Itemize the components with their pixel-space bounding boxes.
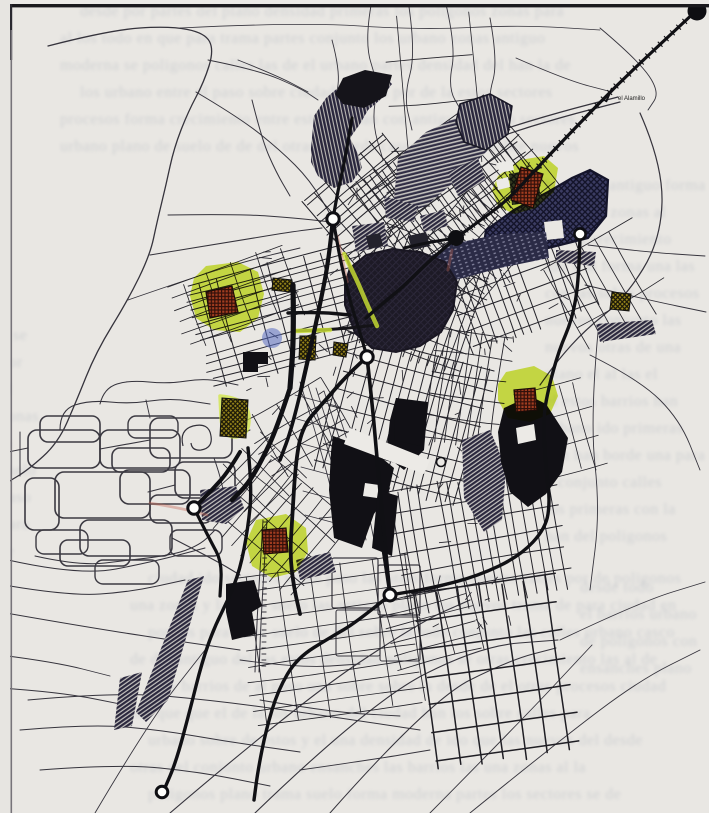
svg-text:poligonos plano trama suelo fo: poligonos plano trama suelo forma modern… (148, 786, 621, 803)
svg-text:urbano ido primeras: urbano ido primeras (545, 420, 683, 437)
svg-text:el Alamillo: el Alamillo (618, 96, 646, 102)
svg-text:de poligonos con: de poligonos con (580, 633, 697, 650)
svg-text:en y barrios de al paso una so: en y barrios de al paso una sobre sobre … (148, 678, 666, 695)
svg-text:y conjunto calles: y conjunto calles (545, 474, 662, 491)
svg-text:el barrios urbano: el barrios urbano (580, 606, 697, 623)
svg-text:los primeras con la: los primeras con la (545, 501, 676, 518)
svg-text:al los todo en que para trama: al los todo en que para trama partes con… (60, 30, 546, 47)
svg-text:plano el al las el: plano el al las el (545, 366, 658, 383)
svg-text:nuevos otras de una: nuevos otras de una (545, 339, 681, 356)
svg-text:han del poligonos: han del poligonos (545, 528, 667, 545)
svg-text:con han borde una para: con han borde una para (545, 447, 705, 464)
